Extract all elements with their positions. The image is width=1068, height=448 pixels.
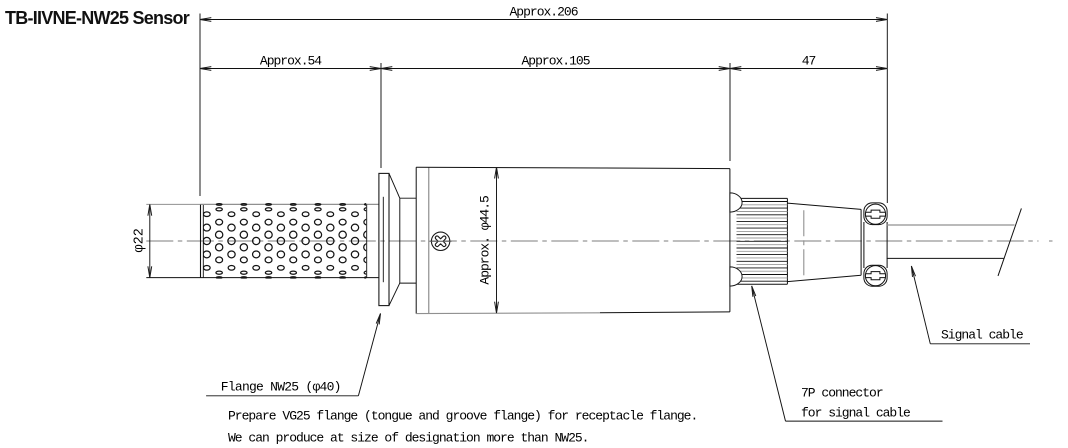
svg-text:Signal cable: Signal cable — [941, 328, 1023, 343]
svg-text:Prepare VG25 flange (tongue an: Prepare VG25 flange (tongue and groove f… — [228, 409, 697, 424]
svg-text:for signal cable: for signal cable — [801, 406, 910, 421]
svg-text:We can produce at size of desi: We can produce at size of designation mo… — [228, 431, 588, 446]
svg-text:Flange NW25 (φ40): Flange NW25 (φ40) — [221, 379, 341, 394]
svg-text:Approx. φ44.5: Approx. φ44.5 — [478, 196, 493, 285]
svg-text:47: 47 — [802, 53, 816, 68]
svg-text:Approx.206: Approx.206 — [509, 5, 577, 20]
svg-text:Approx.105: Approx.105 — [521, 53, 589, 68]
svg-text:7P connector: 7P connector — [801, 386, 883, 401]
svg-text:Approx.54: Approx.54 — [260, 53, 322, 68]
svg-text:φ22: φ22 — [133, 228, 148, 252]
